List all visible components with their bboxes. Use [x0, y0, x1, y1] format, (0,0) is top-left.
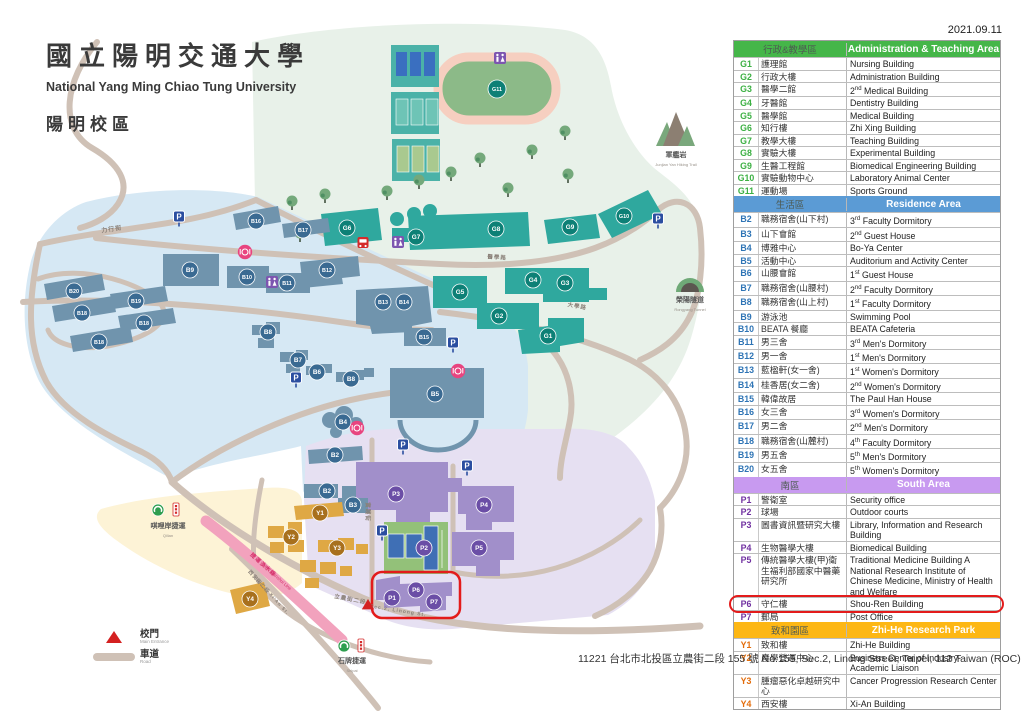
university-title-en: National Yang Ming Chiao Tung University [46, 80, 310, 94]
legend-section-header: 生活區Residence Area [734, 196, 1000, 212]
tunnel-label-en: Rongyang Tunnel [674, 307, 705, 312]
building-name-zh: 教學大樓 [758, 135, 846, 147]
building-name-en: Traditional Medicine Building A National… [846, 554, 1000, 597]
legend-row-B17: B17男二舍2nd Men's Dormitory [734, 419, 1000, 433]
campus-map-page: 國立陽明交通大學 National Yang Ming Chiao Tung U… [0, 0, 1024, 724]
building-code: P6 [734, 598, 758, 610]
building-badge-G7: G7 [408, 229, 424, 245]
campus-name: 陽明校區 [46, 110, 310, 135]
svg-text:P2: P2 [420, 545, 428, 552]
legend-row-P3: P3圖書資訊暨研究大樓Library, Information and Rese… [734, 518, 1000, 541]
building-badge-Y4: Y4 [242, 591, 258, 607]
building-name-en: 5th Men's Dormitory [846, 449, 1000, 462]
legend-row-P1: P1警衛室Security office [734, 493, 1000, 506]
building-name-zh: 藍楹軒(女一舍) [758, 364, 846, 377]
building-name-en: Shou-Ren Building [846, 598, 1000, 610]
svg-text:P6: P6 [412, 587, 420, 594]
legend-row-B19: B19男五舍5th Men's Dormitory [734, 448, 1000, 462]
building-code: G1 [734, 58, 758, 70]
legend-row-G10: G10實驗動物中心Laboratory Animal Center [734, 171, 1000, 184]
legend-row-G5: G5醫學館Medical Building [734, 109, 1000, 122]
building-badge-G1: G1 [540, 328, 556, 344]
entrance-triangle-icon [105, 630, 123, 644]
building-code: G11 [734, 185, 758, 197]
building-code: B14 [734, 379, 758, 392]
building-name-en: Swimming Pool [846, 311, 1000, 323]
mrt-sign-icon [173, 503, 179, 516]
building-code: B13 [734, 364, 758, 377]
building-name-zh: 男三舍 [758, 336, 846, 349]
svg-text:B3: B3 [349, 502, 358, 509]
legend-row-B5: B5活動中心Auditorium and Activity Center [734, 254, 1000, 267]
building-name-zh: BEATA 餐廳 [758, 323, 846, 335]
building-badge-B3: B3 [345, 497, 361, 513]
building-name-en: 2nd Medical Building [846, 83, 1000, 96]
building-name-zh: 西安樓 [758, 698, 846, 710]
building-badge-B7: B7 [290, 352, 306, 368]
building-code: G8 [734, 147, 758, 159]
building-badge-B8: B8 [260, 324, 276, 340]
building-badge-B14: B14 [396, 294, 412, 310]
legend-row-B15: B15韓偉故居The Paul Han House [734, 392, 1000, 405]
building-badge-B17: B17 [295, 222, 311, 238]
legend-section-header: 致和園區Zhi-He Research Park [734, 622, 1000, 638]
mrt-sign-icon [358, 639, 364, 652]
building-name-zh: 腫瘤惡化卓越研究中心 [758, 675, 846, 697]
building-code: G7 [734, 135, 758, 147]
building-name-zh: 女五舍 [758, 463, 846, 476]
building-name-en: 3rd Women's Dormitory [846, 406, 1000, 419]
legend-row-Y1: Y1致和樓Zhi-He Building [734, 638, 1000, 651]
building-badge-Y1: Y1 [312, 505, 328, 521]
building-name-zh: 知行樓 [758, 122, 846, 134]
building-badge-B18: B18 [74, 305, 90, 321]
building-name-zh: 韓偉故居 [758, 393, 846, 405]
legend-row-B3: B3山下會館2nd Guest House [734, 227, 1000, 241]
mountain-label-zh: 軍艦岩 [666, 150, 687, 159]
building-name-en: Xi-An Building [846, 698, 1000, 710]
building-code: B8 [734, 296, 758, 309]
legend-row-G1: G1護理館Nursing Building [734, 57, 1000, 70]
legend-row-G7: G7教學大樓Teaching Building [734, 134, 1000, 147]
building-badge-B13: B13 [375, 294, 391, 310]
svg-text:Y4: Y4 [246, 596, 254, 603]
building-name-en: Laboratory Animal Center [846, 172, 1000, 184]
building-name-en: Biomedical Building [846, 542, 1000, 554]
legend-row-G8: G8實驗大樓Experimental Building [734, 146, 1000, 159]
legend-row-G11: G11運動場Sports Ground [734, 184, 1000, 197]
building-badge-B18: B18 [136, 315, 152, 331]
building-name-zh: 職務宿舍(山麓村) [758, 435, 846, 448]
legend-row-B16: B16女三舍3rd Women's Dormitory [734, 405, 1000, 419]
building-badge-P2: P2 [416, 540, 432, 556]
legend-row-P4: P4生物醫學大樓Biomedical Building [734, 541, 1000, 554]
building-name-en: 2nd Faculty Dormitory [846, 282, 1000, 295]
legend-row-G2: G2行政大樓Administration Building [734, 70, 1000, 83]
building-code: P5 [734, 554, 758, 597]
building-name-en: Zhi Xing Building [846, 122, 1000, 134]
building-name-zh: 活動中心 [758, 255, 846, 267]
building-code: B9 [734, 311, 758, 323]
section-title-zh: 行政&教學區 [734, 41, 846, 57]
building-code: B20 [734, 463, 758, 476]
section-title-zh: 南區 [734, 477, 846, 493]
building-name-zh: 實驗大樓 [758, 147, 846, 159]
building-badge-B19: B19 [128, 293, 144, 309]
wc-icon [392, 236, 404, 248]
building-name-zh: 傳統醫學大樓(甲)衛生福利部國家中醫藥研究所 [758, 554, 846, 597]
mrt-logo-icon [152, 504, 164, 516]
building-code: P2 [734, 506, 758, 518]
building-code: B12 [734, 350, 758, 363]
svg-text:B9: B9 [186, 267, 195, 274]
building-name-zh: 男二舍 [758, 420, 846, 433]
map-date: 2021.09.11 [948, 24, 1002, 36]
section-title-zh: 生活區 [734, 196, 846, 212]
building-name-en: Administration Building [846, 71, 1000, 83]
building-badge-G10: G10 [616, 208, 632, 224]
building-name-en: Medical Building [846, 110, 1000, 122]
building-code: B19 [734, 449, 758, 462]
building-name-zh: 醫學館 [758, 110, 846, 122]
building-name-zh: 行政大樓 [758, 71, 846, 83]
section-title-en: Administration & Teaching Area [846, 43, 1000, 56]
svg-text:B10: B10 [242, 275, 252, 281]
building-code: G10 [734, 172, 758, 184]
legend-row-B9: B9游泳池Swimming Pool [734, 310, 1000, 323]
building-badge-Y3: Y3 [329, 540, 345, 556]
building-code: B17 [734, 420, 758, 433]
university-title-zh: 國立陽明交通大學 [46, 36, 310, 73]
svg-text:B8: B8 [264, 329, 273, 336]
svg-text:B11: B11 [282, 281, 292, 287]
section-title-zh: 致和園區 [734, 622, 846, 638]
building-code: B6 [734, 267, 758, 280]
building-code: P7 [734, 611, 758, 623]
section-title-en: Residence Area [846, 198, 1000, 211]
building-name-zh: 男一舍 [758, 350, 846, 363]
svg-text:B16: B16 [251, 219, 261, 225]
qilian-station-label-en: Qilian [163, 533, 173, 538]
wc-icon [494, 52, 506, 64]
building-name-en: 1st Guest House [846, 267, 1000, 280]
tunnel-label-zh: 榮陽隧道 [676, 295, 704, 304]
building-name-zh: 護理館 [758, 58, 846, 70]
svg-text:B6: B6 [313, 369, 322, 376]
building-name-zh: 桂香居(女二舍) [758, 379, 846, 392]
building-name-en: Zhi-He Building [846, 639, 1000, 651]
building-name-en: 2nd Guest House [846, 228, 1000, 241]
building-badge-P7: P7 [426, 594, 442, 610]
svg-text:Y3: Y3 [333, 545, 341, 552]
svg-text:Y1: Y1 [316, 510, 324, 517]
building-code: P3 [734, 519, 758, 541]
building-code: G4 [734, 97, 758, 109]
building-name-en: 5th Women's Dormitory [846, 463, 1000, 476]
building-badge-P1: P1 [384, 590, 400, 606]
building-badge-B11: B11 [279, 275, 295, 291]
building-name-en: 1st Men's Dormitory [846, 350, 1000, 363]
svg-text:G1: G1 [544, 333, 553, 340]
svg-text:G2: G2 [495, 313, 504, 320]
restaurant-icon [350, 421, 364, 435]
svg-text:P3: P3 [392, 491, 400, 498]
svg-text:B19: B19 [131, 299, 141, 305]
building-name-en: Outdoor courts [846, 506, 1000, 518]
building-code: G6 [734, 122, 758, 134]
legend-row-B7: B7職務宿舍(山腰村)2nd Faculty Dormitory [734, 281, 1000, 295]
building-name-en: 1st Women's Dormitory [846, 364, 1000, 377]
svg-text:B14: B14 [399, 300, 409, 306]
svg-text:B13: B13 [378, 300, 388, 306]
svg-text:B7: B7 [294, 357, 303, 364]
building-name-zh: 山下會館 [758, 228, 846, 241]
building-name-zh: 游泳池 [758, 311, 846, 323]
building-name-en: Nursing Building [846, 58, 1000, 70]
legend-row-P6: P6守仁樓Shou-Ren Building [734, 597, 1000, 610]
legend-row-P5: P5傳統醫學大樓(甲)衛生福利部國家中醫藥研究所Traditional Medi… [734, 553, 1000, 597]
svg-text:B18: B18 [139, 321, 149, 327]
building-name-en: Sports Ground [846, 185, 1000, 197]
building-code: B18 [734, 435, 758, 448]
building-name-en: Biomedical Engineering Building [846, 160, 1000, 172]
building-code: B2 [734, 213, 758, 226]
building-name-en: 4th Faculty Dormitory [846, 435, 1000, 448]
building-badge-P5: P5 [471, 540, 487, 556]
building-badge-G5: G5 [452, 284, 468, 300]
building-code: B4 [734, 242, 758, 254]
building-name-zh: 運動場 [758, 185, 846, 197]
svg-text:B5: B5 [431, 391, 440, 398]
building-name-en: Post Office [846, 611, 1000, 623]
building-name-en: Cancer Progression Research Center [846, 675, 1000, 697]
sports-courts-buildings [391, 45, 440, 181]
building-name-zh: 生醫工程館 [758, 160, 846, 172]
building-name-zh: 守仁樓 [758, 598, 846, 610]
building-name-en: Security office [846, 494, 1000, 506]
building-name-en: 1st Faculty Dormitory [846, 296, 1000, 309]
building-badge-B5: B5 [427, 386, 443, 402]
building-badge-G6: G6 [339, 220, 355, 236]
shipai-station-label-en: Shipai [346, 668, 357, 673]
building-name-zh: 警衛室 [758, 494, 846, 506]
building-name-en: 3rd Faculty Dormitory [846, 213, 1000, 226]
building-code: P4 [734, 542, 758, 554]
legend-row-P7: P7郵局Post Office [734, 610, 1000, 623]
svg-text:G6: G6 [343, 225, 352, 232]
legend-row-Y4: Y4西安樓Xi-An Building [734, 697, 1000, 710]
svg-text:B12: B12 [322, 268, 332, 274]
svg-text:B4: B4 [339, 419, 348, 426]
legend-row-B4: B4博雅中心Bo-Ya Center [734, 241, 1000, 254]
shipai-station-label-zh: 石牌捷運 [337, 656, 367, 665]
legend-row-G4: G4牙醫館Dentistry Building [734, 96, 1000, 109]
building-name-zh: 實驗動物中心 [758, 172, 846, 184]
svg-text:B8: B8 [347, 376, 356, 383]
svg-text:B18: B18 [94, 340, 104, 346]
svg-text:B2: B2 [331, 452, 340, 459]
key-road: 車道 Road [88, 650, 169, 664]
building-code: G2 [734, 71, 758, 83]
building-code: Y4 [734, 698, 758, 710]
legend-row-B13: B13藍楹軒(女一舍)1st Women's Dormitory [734, 363, 1000, 377]
mountain-icon [656, 112, 695, 146]
building-badge-B12: B12 [319, 262, 335, 278]
building-code: P1 [734, 494, 758, 506]
bus-icon [358, 237, 369, 248]
building-name-en: Dentistry Building [846, 97, 1000, 109]
legend-row-B8: B8職務宿舍(山上村)1st Faculty Dormitory [734, 295, 1000, 309]
mrt-logo-icon [338, 640, 350, 652]
building-badge-G4: G4 [525, 272, 541, 288]
building-badge-B15: B15 [416, 329, 432, 345]
building-name-en: 2nd Men's Dormitory [846, 420, 1000, 433]
building-code: Y1 [734, 639, 758, 651]
building-code: B3 [734, 228, 758, 241]
building-name-en: Experimental Building [846, 147, 1000, 159]
legend-row-B18: B18職務宿舍(山麓村)4th Faculty Dormitory [734, 434, 1000, 448]
building-name-zh: 職務宿舍(山腰村) [758, 282, 846, 295]
building-code: Y3 [734, 675, 758, 697]
key-entrance-label-zh: 校門 [140, 630, 169, 639]
building-badge-G3: G3 [557, 275, 573, 291]
qilian-station-label-zh: 唭哩岸捷運 [151, 521, 187, 530]
legend-row-B2: B2職務宿舍(山下村)3rd Faculty Dormitory [734, 212, 1000, 226]
mountain-label-en: Junjian Yan Hiking Trail [655, 162, 697, 167]
svg-text:B18: B18 [77, 311, 87, 317]
building-name-zh: 致和樓 [758, 639, 846, 651]
building-name-en: Library, Information and Research Buildi… [846, 519, 1000, 541]
campus-address: 11221 台北市北投區立農街二段 155 號 No.155, Sec.2, L… [578, 651, 1021, 666]
building-name-zh: 球場 [758, 506, 846, 518]
building-name-zh: 圖書資訊暨研究大樓 [758, 519, 846, 541]
building-badge-B2: B2 [327, 447, 343, 463]
legend-row-G3: G3醫學二館2nd Medical Building [734, 82, 1000, 96]
building-badge-B10: B10 [239, 269, 255, 285]
title-block: 國立陽明交通大學 National Yang Ming Chiao Tung U… [46, 36, 310, 135]
building-badge-G11: G11 [488, 80, 506, 98]
svg-text:G9: G9 [566, 224, 575, 231]
wc-icon [266, 276, 278, 288]
svg-text:G3: G3 [561, 280, 570, 287]
building-badge-B6: B6 [309, 364, 325, 380]
building-code: G5 [734, 110, 758, 122]
legend-row-B14: B14桂香居(女二舍)2nd Women's Dormitory [734, 378, 1000, 392]
building-badge-P6: P6 [408, 582, 424, 598]
legend-table: 行政&教學區Administration & Teaching AreaG1護理… [733, 40, 1001, 710]
building-name-zh: 男五舍 [758, 449, 846, 462]
building-badge-B8: B8 [343, 371, 359, 387]
restaurant-icon [238, 245, 252, 259]
street-label: 實踐街 [364, 502, 372, 522]
building-name-en: Auditorium and Activity Center [846, 255, 1000, 267]
building-name-zh: 博雅中心 [758, 242, 846, 254]
svg-text:B15: B15 [419, 335, 429, 341]
legend-section-header: 行政&教學區Administration & Teaching Area [734, 41, 1000, 57]
building-name-zh: 職務宿舍(山下村) [758, 213, 846, 226]
building-name-en: BEATA Cafeteria [846, 323, 1000, 335]
legend-row-B12: B12男一舍1st Men's Dormitory [734, 349, 1000, 363]
building-name-zh: 醫學二館 [758, 83, 846, 96]
building-code: G3 [734, 83, 758, 96]
building-name-zh: 郵局 [758, 611, 846, 623]
building-name-en: Teaching Building [846, 135, 1000, 147]
building-badge-G2: G2 [491, 308, 507, 324]
svg-text:G5: G5 [456, 289, 465, 296]
svg-text:B2: B2 [323, 488, 332, 495]
legend-row-B10: B10BEATA 餐廳BEATA Cafeteria [734, 322, 1000, 335]
building-name-en: The Paul Han House [846, 393, 1000, 405]
building-badge-B20: B20 [66, 283, 82, 299]
svg-text:G10: G10 [619, 214, 629, 220]
key-entrance: 校門 Main Entrance [88, 630, 169, 644]
building-code: B16 [734, 406, 758, 419]
section-title-en: Zhi-He Research Park [846, 624, 1000, 637]
building-code: B11 [734, 336, 758, 349]
building-badge-P4: P4 [476, 497, 492, 513]
building-name-zh: 女三舍 [758, 406, 846, 419]
restaurant-icon [451, 364, 465, 378]
building-name-zh: 生物醫學大樓 [758, 542, 846, 554]
svg-text:P5: P5 [475, 545, 483, 552]
svg-text:Y2: Y2 [287, 534, 295, 541]
building-code: B7 [734, 282, 758, 295]
svg-text:B17: B17 [298, 228, 308, 234]
building-name-zh: 山腰會館 [758, 267, 846, 280]
legend-row-G6: G6知行樓Zhi Xing Building [734, 121, 1000, 134]
building-badge-G9: G9 [562, 219, 578, 235]
building-badge-Y2: Y2 [283, 529, 299, 545]
legend-row-B20: B20女五舍5th Women's Dormitory [734, 462, 1000, 476]
building-badge-G8: G8 [488, 221, 504, 237]
building-name-zh: 職務宿舍(山上村) [758, 296, 846, 309]
map-key: 校門 Main Entrance 車道 Road [88, 630, 169, 670]
legend-row-B11: B11男三舍3rd Men's Dormitory [734, 335, 1000, 349]
svg-text:G7: G7 [412, 234, 421, 241]
key-road-label-zh: 車道 [140, 650, 159, 659]
building-badge-B18: B18 [91, 334, 107, 350]
building-name-en: 2nd Women's Dormitory [846, 379, 1000, 392]
building-badge-B2: B2 [319, 483, 335, 499]
building-badge-B16: B16 [248, 213, 264, 229]
legend-row-Y3: Y3腫瘤惡化卓越研究中心Cancer Progression Research … [734, 674, 1000, 697]
svg-text:B20: B20 [69, 289, 79, 295]
key-entrance-label-en: Main Entrance [140, 639, 169, 644]
building-name-en: 3rd Men's Dormitory [846, 336, 1000, 349]
building-badge-B9: B9 [182, 262, 198, 278]
building-code: B15 [734, 393, 758, 405]
building-badge-B4: B4 [335, 414, 351, 430]
legend-section-header: 南區South Area [734, 477, 1000, 493]
svg-text:G4: G4 [529, 277, 538, 284]
building-name-zh: 牙醫館 [758, 97, 846, 109]
building-name-en: Bo-Ya Center [846, 242, 1000, 254]
svg-text:P1: P1 [388, 595, 396, 602]
svg-text:G8: G8 [492, 226, 501, 233]
section-title-en: South Area [846, 478, 1000, 491]
svg-text:P4: P4 [480, 502, 488, 509]
road-bar-icon [92, 652, 136, 662]
building-badge-P3: P3 [388, 486, 404, 502]
svg-text:G11: G11 [492, 87, 502, 93]
svg-text:P7: P7 [430, 599, 438, 606]
building-code: G9 [734, 160, 758, 172]
legend-row-B6: B6山腰會館1st Guest House [734, 266, 1000, 280]
building-code: B5 [734, 255, 758, 267]
legend-row-P2: P2球場Outdoor courts [734, 505, 1000, 518]
building-code: B10 [734, 323, 758, 335]
legend-row-G9: G9生醫工程館Biomedical Engineering Building [734, 159, 1000, 172]
